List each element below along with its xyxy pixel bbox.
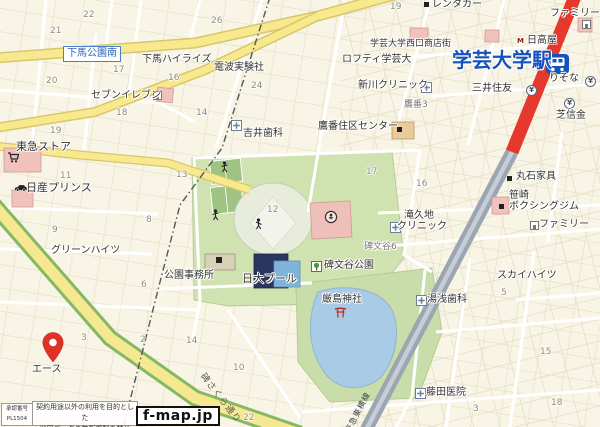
map-label: りそな (549, 74, 579, 85)
copyright-notice-box: 契約用途以外の利用を目的とした 地図データの無断複製を禁じる。 (32, 401, 138, 426)
block-number: 3 (473, 404, 479, 414)
block-number: 10 (233, 363, 244, 373)
map-label: セブンイレブン (91, 91, 161, 102)
map-label: 笹崎 (509, 191, 529, 202)
convenience-store-icon (530, 221, 539, 230)
restaurant-logo-icon: M (517, 37, 524, 45)
bank-icon: ¥ (564, 98, 575, 109)
block-number: 9 (52, 225, 58, 235)
block-number: 19 (390, 2, 401, 12)
map-label: エース (32, 365, 62, 376)
block-number: 18 (551, 398, 562, 408)
map-label: 電波実験社 (214, 63, 264, 74)
block-number: 24 (251, 81, 262, 91)
map-label: ファミリー (539, 220, 589, 231)
block-number: 14 (196, 108, 207, 118)
bank-icon: ¥ (585, 76, 596, 87)
block-number: 22 (83, 10, 94, 20)
block-number: 5 (501, 288, 507, 298)
map-label: 日高屋 (527, 36, 557, 47)
map-label: 藤田医院 (426, 388, 466, 399)
block-number: 13 (176, 170, 187, 180)
hospital-icon (231, 120, 242, 131)
block-number: 21 (50, 26, 61, 36)
block-number: 22 (243, 413, 254, 423)
map-label: 日産プリンス (26, 182, 92, 194)
map-label: スカイハイツ (497, 271, 557, 282)
poi-square-icon (507, 176, 512, 181)
map-label: クリニック (397, 222, 447, 233)
map-label: 三井住友 (472, 84, 512, 95)
block-number: 2 (140, 335, 146, 345)
map-label: 鷹番住区センター (318, 122, 398, 133)
map-label: 湯浅歯科 (427, 295, 467, 306)
tennis-player-icon (211, 209, 220, 221)
map-label: 公園事務所 (164, 271, 214, 282)
block-number: 8 (146, 215, 152, 225)
map-label: 下馬ハイライズ (142, 55, 212, 66)
block-number: 17 (113, 65, 124, 75)
poi-square-icon (424, 2, 429, 7)
map-label: 碑文谷6 (364, 243, 397, 252)
intersection-sign: 下馬公園南 (63, 46, 121, 62)
convenience-store-icon (582, 20, 591, 29)
map-label: 滝久地 (404, 211, 434, 222)
block-number: 3 (81, 333, 87, 343)
map-label: ボクシングジム (509, 202, 579, 213)
map-label: レンタカー (432, 0, 482, 11)
block-number: 16 (416, 179, 427, 189)
hospital-icon (416, 295, 427, 306)
map-label: 新川クリニック (358, 81, 428, 92)
block-number: 19 (50, 126, 61, 136)
poi-square-icon (499, 204, 504, 209)
location-pin-icon[interactable] (42, 332, 64, 363)
map-label: 吉井歯科 (243, 129, 283, 140)
license-number-box: 承認番号 PL1504 (1, 403, 33, 426)
map-label: 東急ストア (16, 141, 71, 153)
map-label: ロフティ学芸大 (342, 55, 411, 66)
baseball-player-icon (254, 218, 263, 230)
block-number: 6 (141, 280, 147, 290)
map-label: 学芸大学駅 (452, 50, 552, 71)
block-number: 17 (366, 167, 377, 177)
gymnasium-icon (324, 210, 338, 224)
fmap-logo: f-map.jp (136, 406, 220, 426)
block-number: 15 (540, 347, 551, 357)
block-number: 11 (60, 171, 71, 181)
block-number: 20 (46, 76, 57, 86)
map-label: 丸石家具 (516, 172, 556, 183)
map-label: 碑文谷公園 (324, 261, 374, 272)
map-label: 学芸大学西口商店街 (370, 40, 451, 49)
map-label: 芝信金 (556, 111, 586, 122)
map-label: 鷹番3 (404, 101, 428, 110)
block-number: 12 (267, 205, 278, 215)
block-number: 16 (168, 73, 179, 83)
block-number: 18 (116, 108, 127, 118)
map-label: ファミリー (550, 9, 600, 20)
map-label: 厳島神社 (322, 295, 362, 306)
torii-shrine-icon (334, 307, 347, 318)
block-number: 14 (186, 336, 197, 346)
shopping-cart-icon (7, 152, 19, 163)
map-label: 日大プール (242, 273, 297, 285)
map-canvas[interactable]: ¥ ¥ ¥ M 下馬公園南 碑さくら通り 東急東横線 下馬ハイライズ電波実験社セ… (0, 0, 600, 427)
hospital-icon (415, 388, 426, 399)
bank-icon: ¥ (526, 85, 537, 96)
park-tree-icon (311, 261, 322, 272)
block-number: 26 (211, 16, 222, 26)
map-label: グリーンハイツ (51, 246, 120, 257)
tennis-player-icon (220, 161, 229, 173)
